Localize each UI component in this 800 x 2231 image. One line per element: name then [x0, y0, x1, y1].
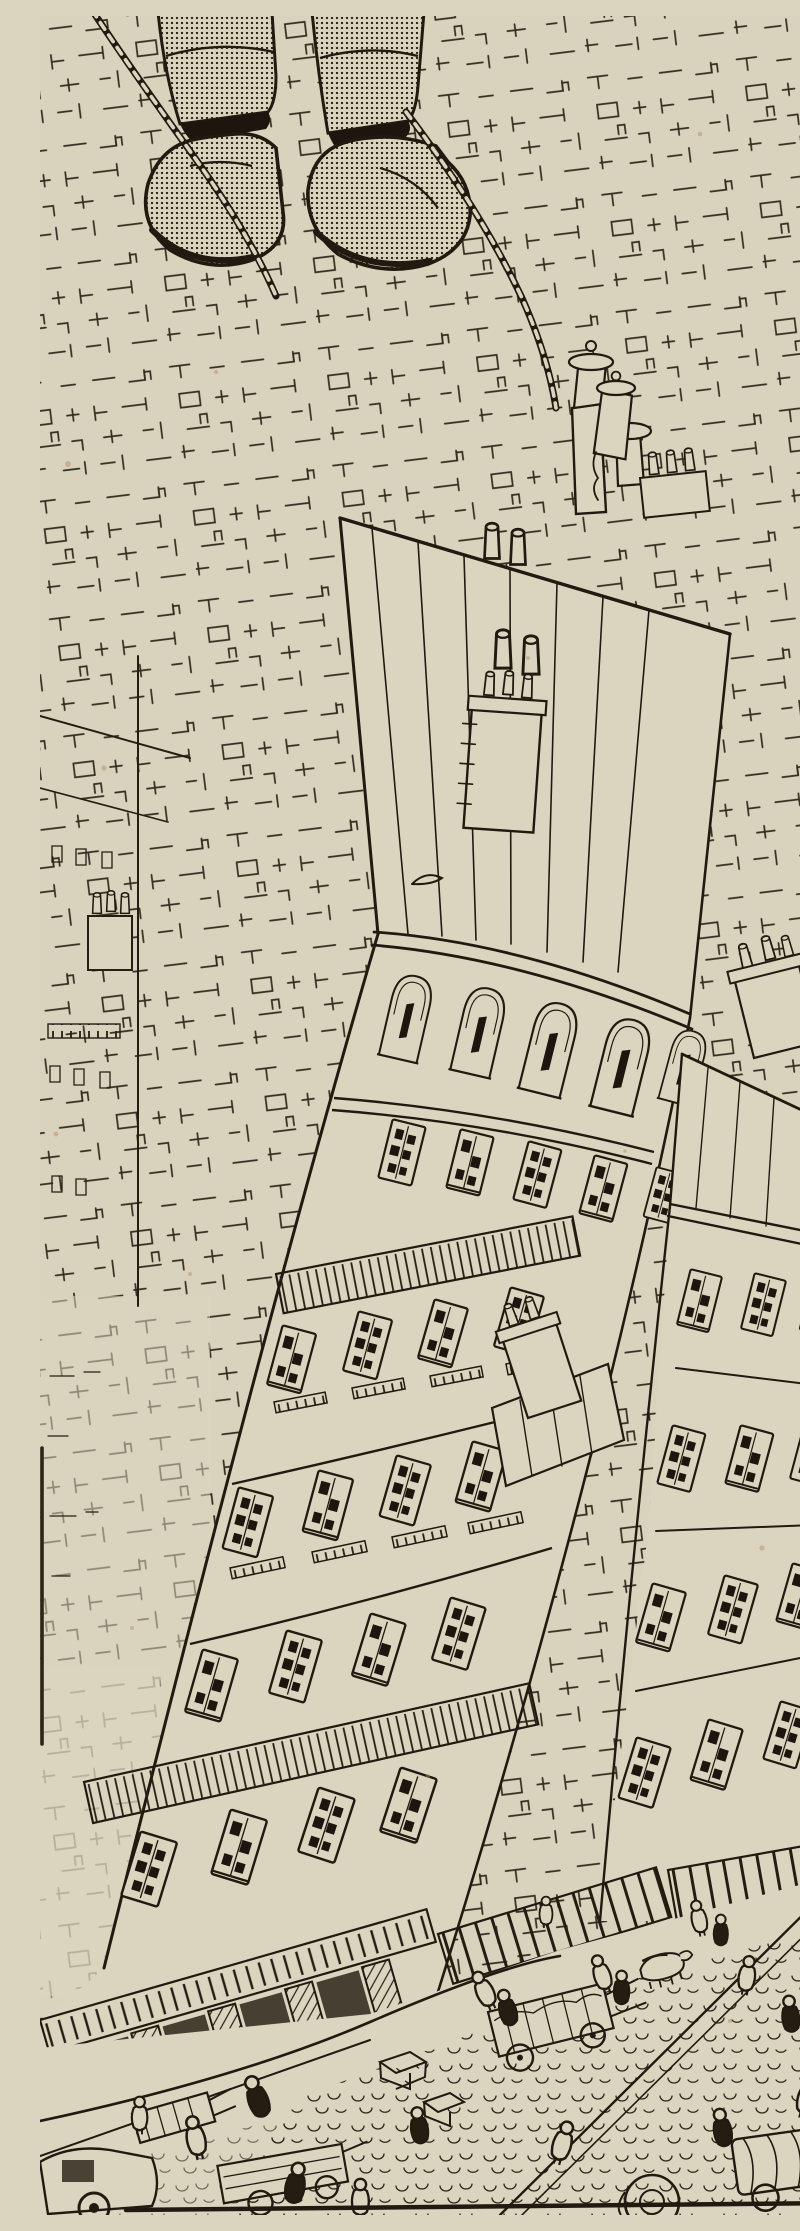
left-trouser — [158, 16, 276, 124]
ink-illustration — [40, 16, 800, 2215]
right-boot — [308, 137, 470, 269]
distant-chimney — [88, 891, 132, 970]
motor-car-left — [40, 2149, 157, 2216]
